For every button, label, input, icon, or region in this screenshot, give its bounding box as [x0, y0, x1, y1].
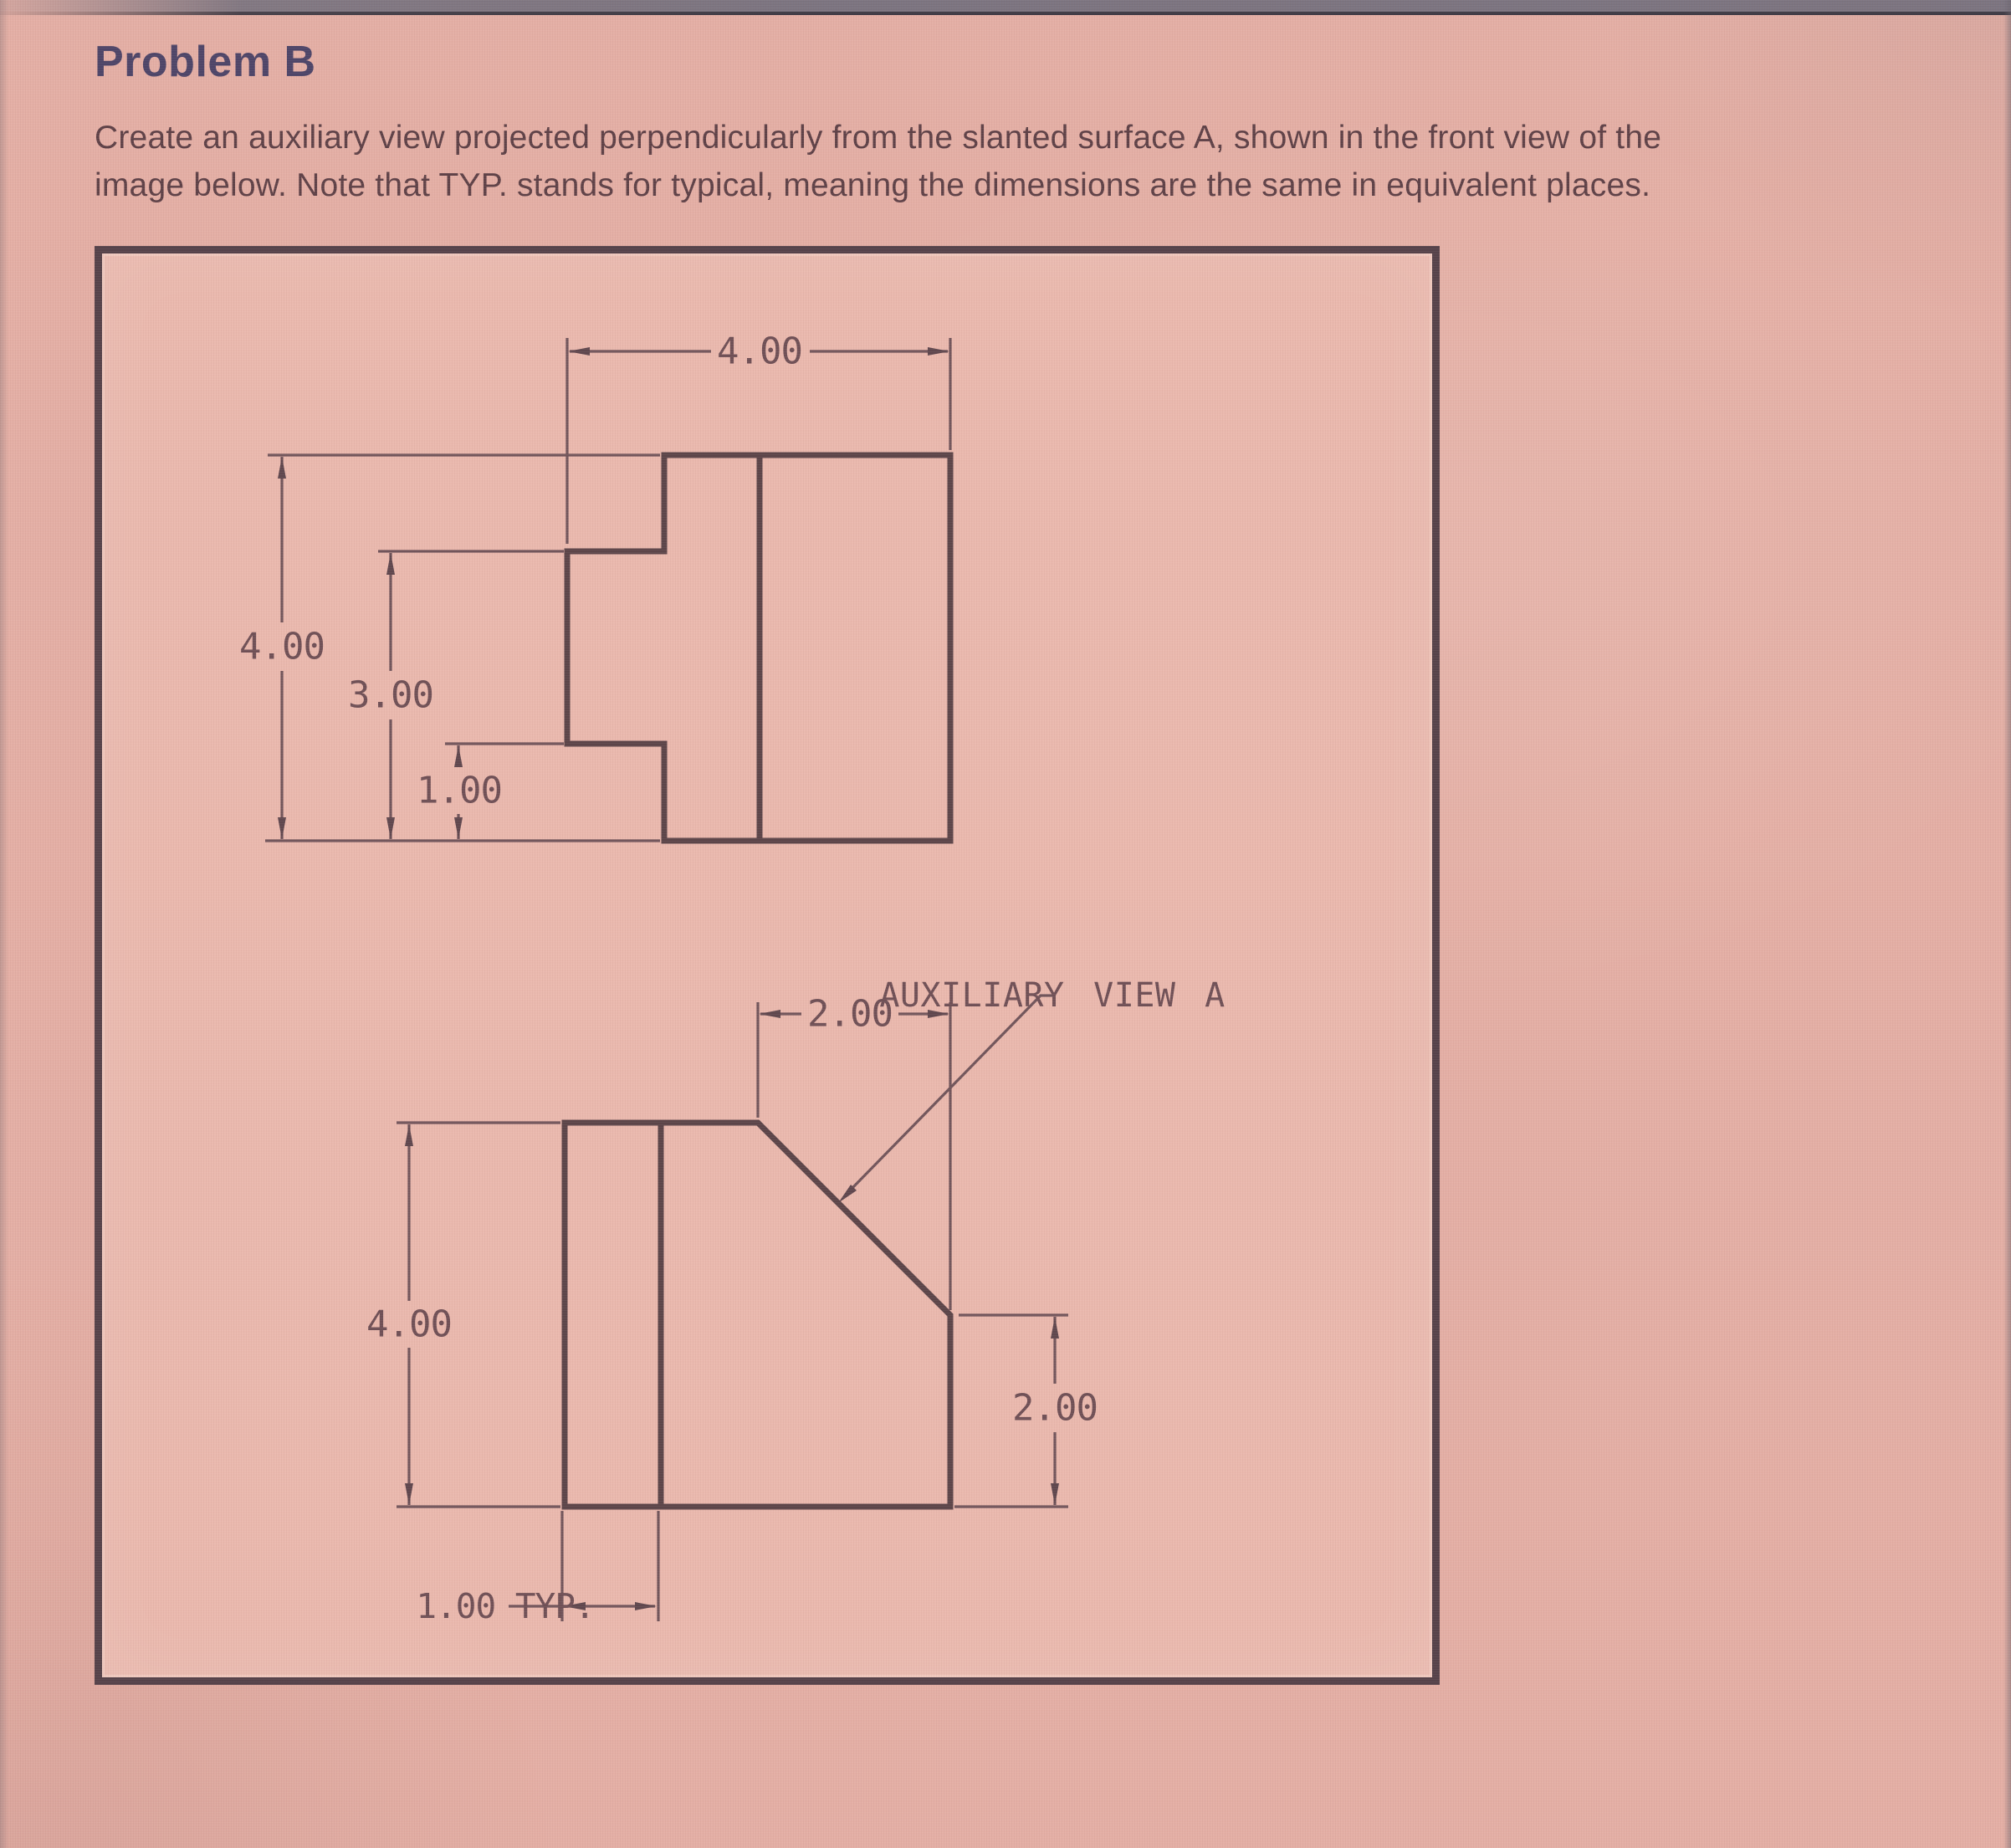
arrowhead-icon [278, 817, 286, 839]
arrowhead-icon [759, 1010, 780, 1018]
photo-right-edge-shade [2003, 0, 2011, 1848]
dim-label-top-view-notch: 1.00 [417, 770, 502, 812]
dim-label-top-view-step: 3.00 [348, 674, 433, 717]
callout-label: AUXILIARY VIEW A [879, 976, 1225, 1015]
arrowhead-icon [928, 347, 949, 356]
front-view-dimensions: 4.00 2.00 2.00 1.00 TYP. [366, 993, 1098, 1627]
screenshot-root: Problem B Create an auxiliary view proje… [0, 0, 2011, 1848]
dim-label-top-view-width: 4.00 [717, 330, 802, 373]
screen-bezel-shadow [0, 12, 2011, 15]
arrowhead-icon [386, 553, 395, 575]
arrowhead-icon [386, 817, 395, 839]
arrowhead-icon [278, 457, 286, 479]
dim-label-front-view-height: 4.00 [366, 1303, 452, 1346]
dim-label-front-view-chamfer-height: 2.00 [1012, 1387, 1098, 1430]
dim-label-top-view-height: 4.00 [239, 626, 325, 668]
arrowhead-icon [454, 745, 463, 767]
arrowhead-icon [1051, 1317, 1059, 1339]
front-view [565, 1123, 950, 1507]
top-view-dimensions: 4.00 4.00 3.00 1.00 [239, 330, 950, 842]
photo-left-edge-shade [0, 0, 8, 1848]
front-view-outline [565, 1123, 950, 1507]
screen-bezel-bar [0, 0, 2011, 12]
auxiliary-view-callout: AUXILIARY VIEW A [838, 976, 1226, 1203]
arrowhead-icon [405, 1124, 413, 1146]
dim-label-typical-thickness: 1.00 TYP. [416, 1586, 594, 1626]
arrowhead-icon [635, 1602, 657, 1610]
arrowhead-icon [405, 1483, 413, 1505]
engineering-drawing: 4.00 4.00 3.00 1.00 [0, 0, 2011, 1848]
arrowhead-icon [568, 347, 590, 356]
arrowhead-icon [1051, 1483, 1059, 1505]
top-view [567, 455, 950, 841]
arrowhead-icon [454, 817, 463, 839]
